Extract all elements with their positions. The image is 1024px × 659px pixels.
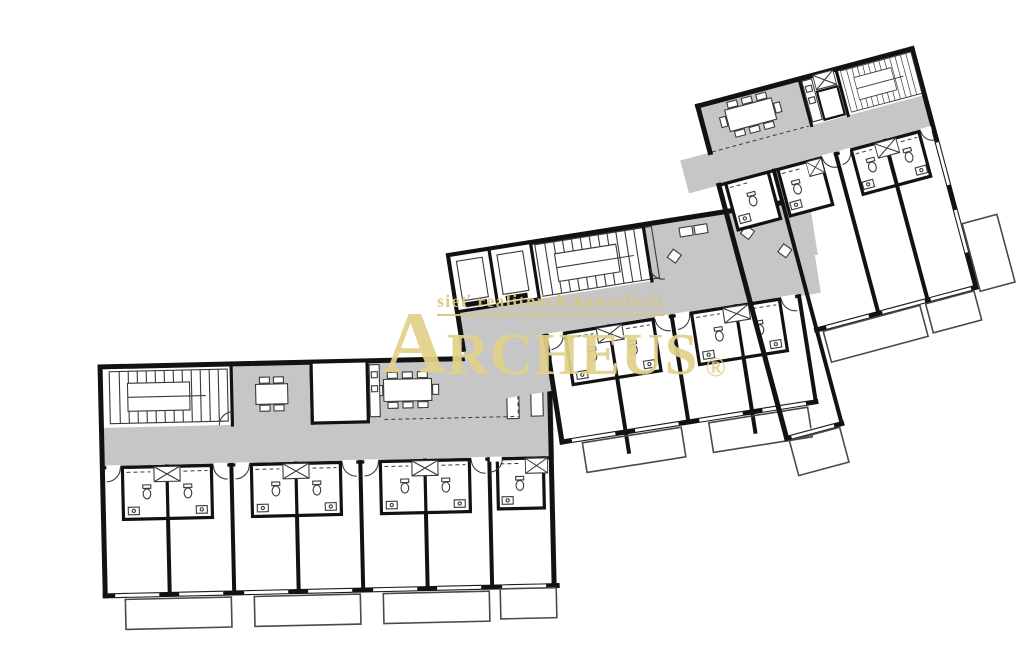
floor-plan-svg: [0, 0, 1024, 659]
balcony: [254, 594, 361, 626]
elevators: [448, 243, 539, 312]
apartment-unit: [489, 455, 548, 509]
storage-room: [311, 361, 368, 423]
balcony: [962, 214, 1015, 291]
floor-plan-stage: [0, 0, 1024, 659]
balcony: [383, 591, 490, 623]
balcony: [125, 597, 232, 629]
balcony: [500, 588, 557, 619]
door-arc: [219, 412, 232, 425]
apartment-unit-pair: [839, 126, 974, 312]
